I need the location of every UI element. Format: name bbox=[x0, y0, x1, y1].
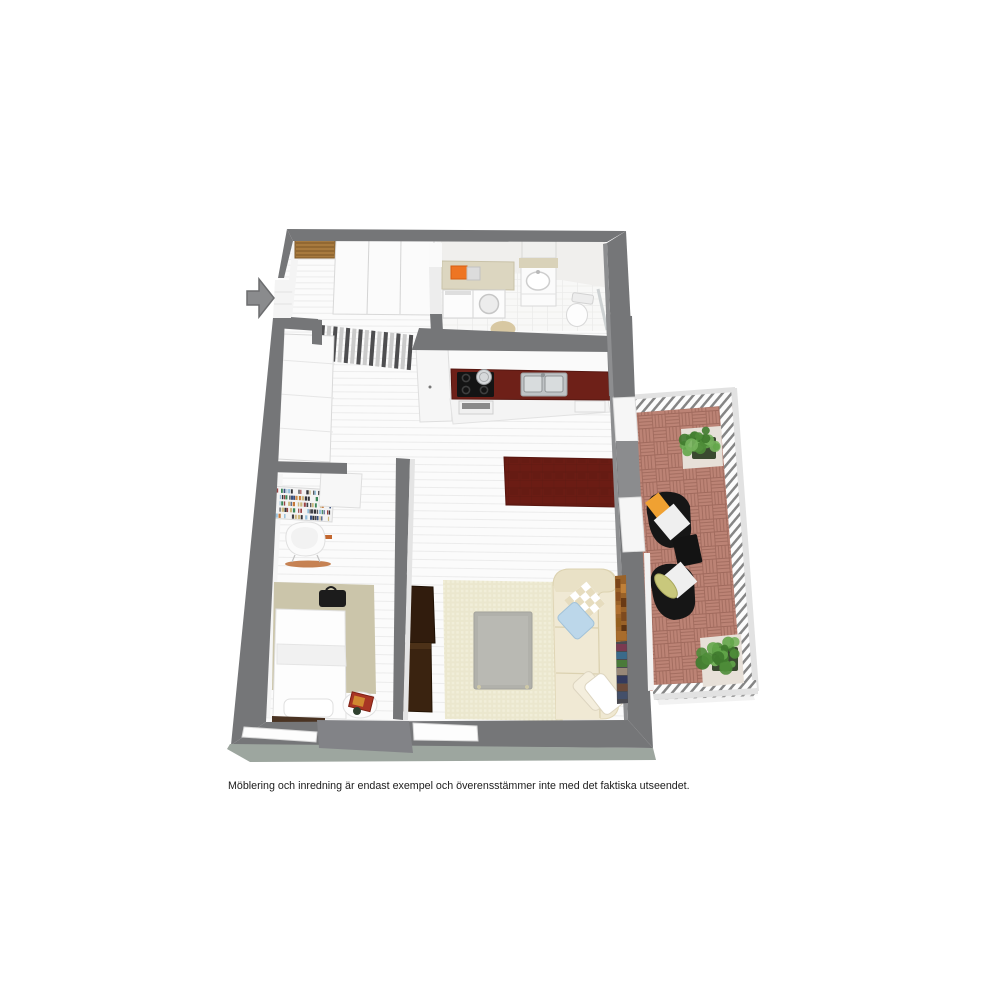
svg-text:Möblering och inredning är end: Möblering och inredning är endast exempe… bbox=[228, 780, 690, 792]
